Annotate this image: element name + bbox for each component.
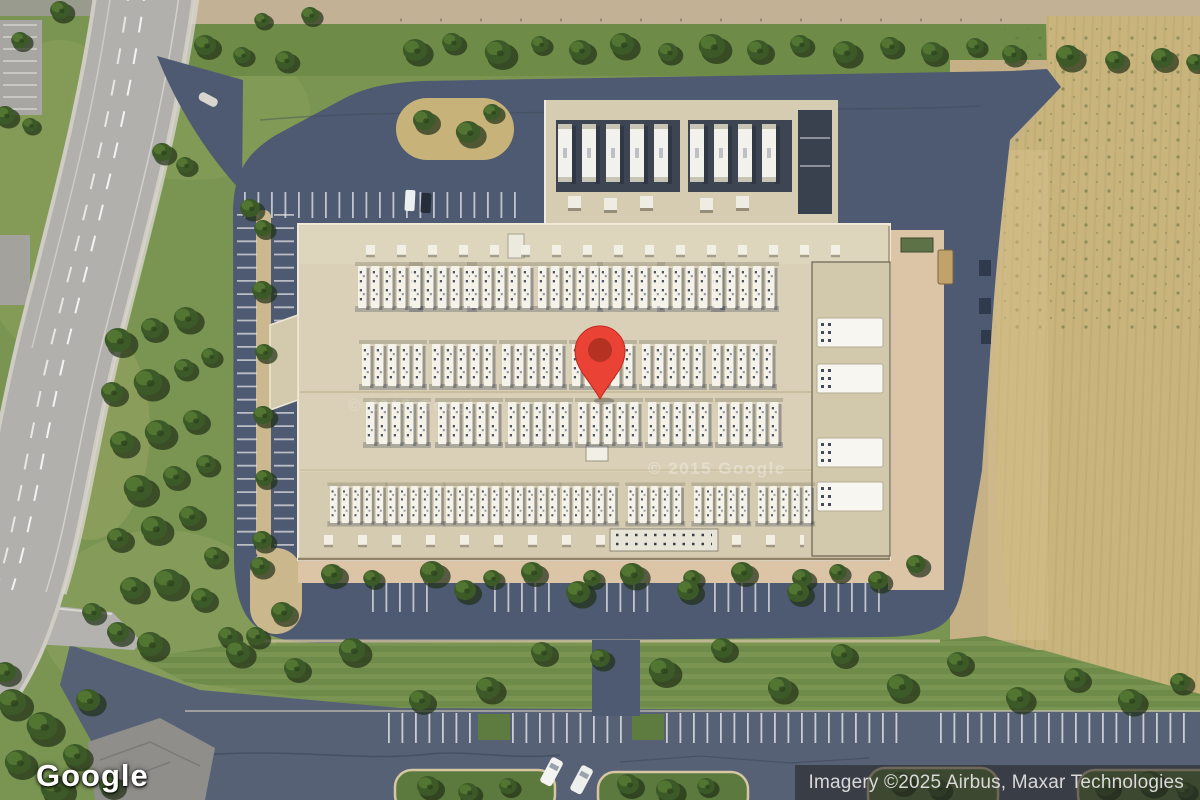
satellite-map[interactable]: © 2015 Google © 2015 Google Google Image… xyxy=(0,0,1200,800)
attribution-bar: Imagery ©2025 Airbus, Maxar Technologies xyxy=(795,765,1200,800)
google-logo[interactable]: Google xyxy=(36,758,149,794)
satellite-imagery xyxy=(0,0,1200,800)
attribution-text: Imagery ©2025 Airbus, Maxar Technologies xyxy=(809,772,1184,794)
